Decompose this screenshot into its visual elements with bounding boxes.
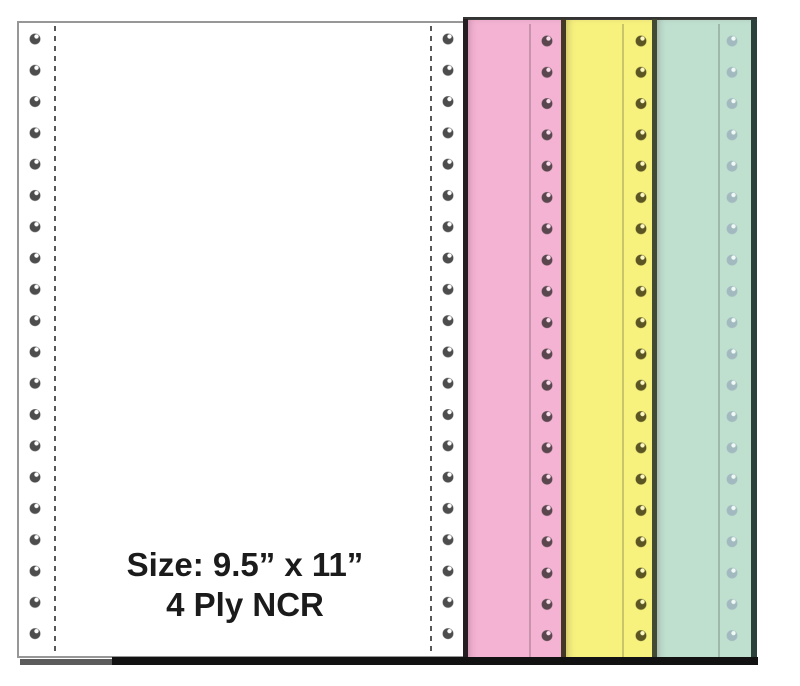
product-image-continuous-form-paper: Size: 9.5” x 11” 4 Ply NCR <box>0 0 800 686</box>
tractor-strip-line-pink <box>529 24 531 660</box>
sheet-edge-shadow-pink-yellow <box>561 17 566 665</box>
bottom-shadow-left <box>20 659 116 665</box>
sheet-yellow <box>564 18 655 664</box>
size-caption-line1: Size: 9.5” x 11” <box>80 545 410 585</box>
sheet-edge-shadow-white-pink <box>463 17 468 665</box>
sheet-pink <box>466 18 564 664</box>
sheet-edge-shadow-green-right <box>751 17 757 665</box>
perforation-line-left <box>54 26 56 655</box>
tractor-strip-line-yellow <box>622 24 624 660</box>
feed-holes-column-left <box>27 25 43 651</box>
bottom-shadow-main <box>112 657 758 665</box>
feed-holes-column-yellow <box>633 27 649 653</box>
tractor-strip-line-green <box>718 24 720 660</box>
top-edge-shadow <box>463 17 757 19</box>
sheet-white: Size: 9.5” x 11” 4 Ply NCR <box>17 21 466 658</box>
feed-holes-column-pink <box>539 27 555 653</box>
feed-holes-column-green <box>724 27 740 653</box>
size-caption: Size: 9.5” x 11” 4 Ply NCR <box>80 545 410 626</box>
feed-holes-column-right <box>440 25 456 651</box>
sheet-green <box>655 18 753 664</box>
perforation-line-right <box>430 26 432 655</box>
sheet-edge-shadow-yellow-green <box>652 17 657 665</box>
size-caption-line2: 4 Ply NCR <box>80 585 410 625</box>
